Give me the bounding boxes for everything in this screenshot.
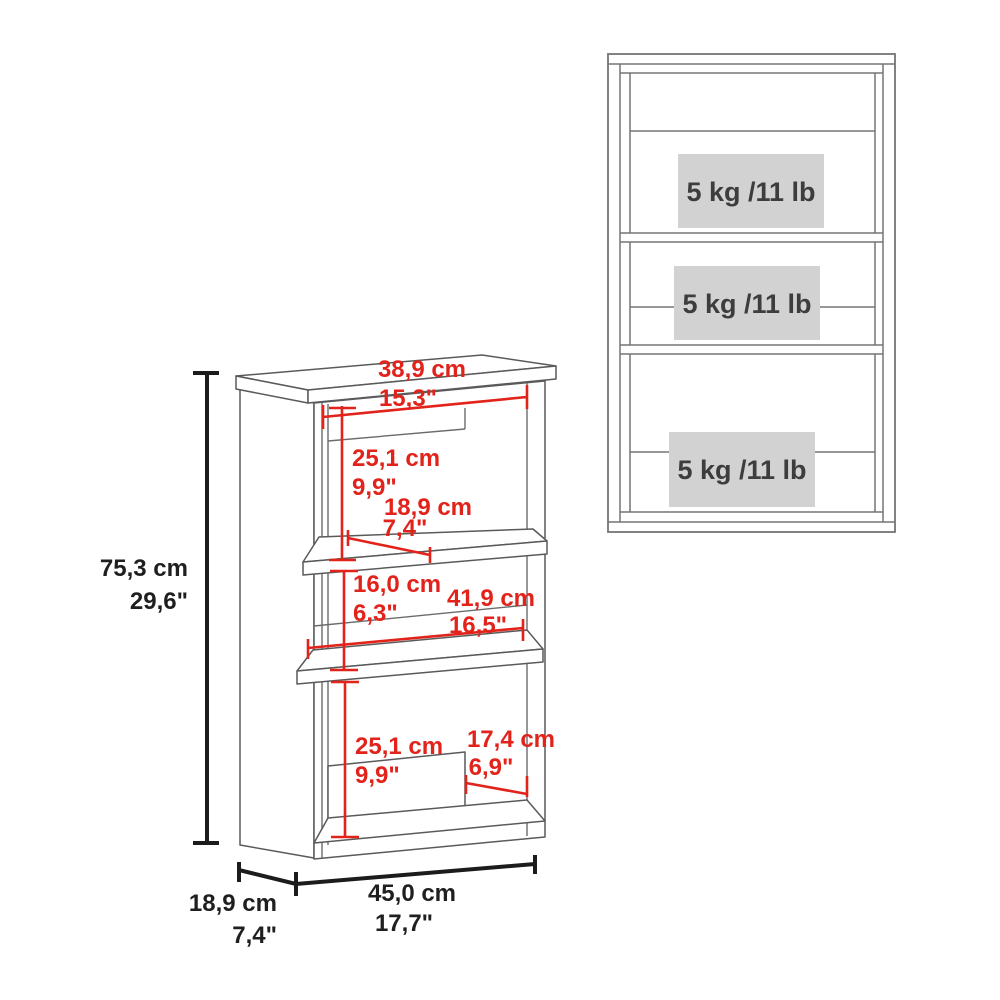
lower-section-in-label: 9,9" xyxy=(355,762,400,789)
overall-depth-in-label: 7,4" xyxy=(232,922,277,949)
overall-width-cm-label: 45,0 cm xyxy=(368,880,456,907)
overall-width-in-label: 17,7" xyxy=(375,910,433,937)
overall-depth-cm-label: 18,9 cm xyxy=(189,890,277,917)
shelf-depth-in-label: 7,4" xyxy=(383,515,428,542)
front-view: 5 kg /11 lb 5 kg /11 lb 5 kg /11 lb xyxy=(608,54,895,532)
middle-section-cm-label: 16,0 cm xyxy=(353,571,441,598)
overall-height-in-label: 29,6" xyxy=(130,588,188,615)
lower-section-cm-label: 25,1 cm xyxy=(355,733,443,760)
perspective-view: 38,9 cm 15,3" 25,1 cm 9,9" 18,9 cm 7,4" … xyxy=(100,355,556,949)
overall-height-dim-line xyxy=(193,373,219,843)
product-dimension-sheet: 38,9 cm 15,3" 25,1 cm 9,9" 18,9 cm 7,4" … xyxy=(0,0,1000,1000)
shelf-capacity-badge-1: 5 kg /11 lb xyxy=(678,154,824,228)
shelf-capacity-badge-2: 5 kg /11 lb xyxy=(674,266,820,340)
overall-height-cm-label: 75,3 cm xyxy=(100,555,188,582)
middle-section-in-label: 6,3" xyxy=(353,600,398,627)
dimension-diagram-canvas: 38,9 cm 15,3" 25,1 cm 9,9" 18,9 cm 7,4" … xyxy=(0,0,1000,1000)
shelf-capacity-badge-3: 5 kg /11 lb xyxy=(669,432,815,507)
capacity-label-1: 5 kg /11 lb xyxy=(686,177,815,207)
inner-width-cm-label: 41,9 cm xyxy=(447,585,535,612)
lower-inner-in-label: 6,9" xyxy=(469,754,514,781)
top-width-in-label: 15,3" xyxy=(379,385,437,412)
top-width-cm-label: 38,9 cm xyxy=(378,356,466,383)
capacity-label-2: 5 kg /11 lb xyxy=(682,289,811,319)
capacity-label-3: 5 kg /11 lb xyxy=(677,455,806,485)
lower-inner-cm-label: 17,4 cm xyxy=(467,726,555,753)
inner-width-in-label: 16,5" xyxy=(449,612,507,639)
upper-section-cm-label: 25,1 cm xyxy=(352,445,440,472)
cabinet-side-panel xyxy=(240,388,314,858)
